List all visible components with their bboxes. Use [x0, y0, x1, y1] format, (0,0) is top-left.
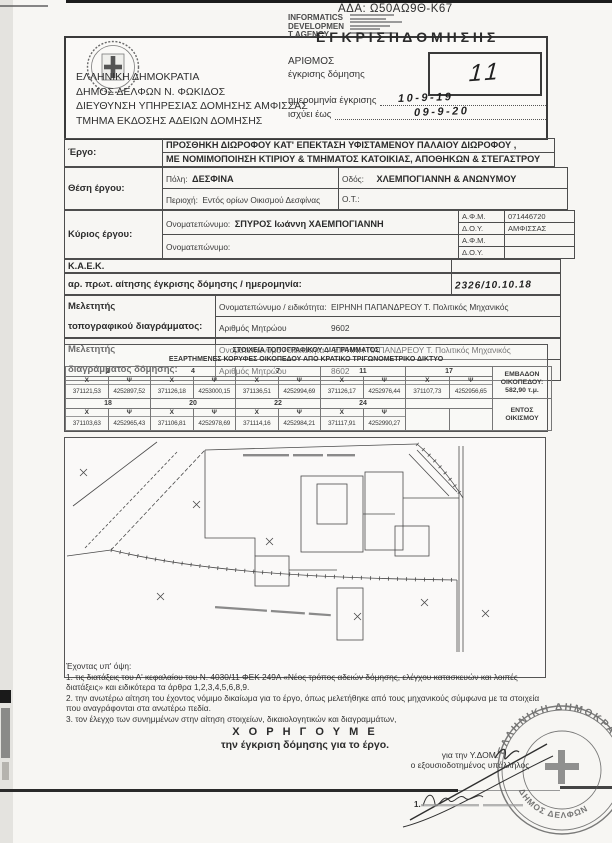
site-plan-box [64, 437, 546, 678]
street-value: ΧΛΕΜΠΟΓΙΑΝΝΗ & ΑΝΩΝΥΜΟΥ [376, 174, 516, 184]
surveyor1-reg-value: 9602 [331, 323, 349, 333]
kaek-label: Κ.Α.Ε.Κ. [65, 260, 452, 273]
scanned-building-permit-page: ΑΔΑ: Ω50ΑΩ9Θ-Κ67 ΕΛΛΗΝΙΚΗ ΔΗΜΟΚΡΑΤΙΑ ΔΗΜ… [0, 0, 612, 843]
coord-cell-empty [449, 409, 493, 431]
coord-cell: Ψ4252976,44 [363, 377, 406, 399]
coord-cell: X371136,51 [236, 377, 279, 399]
owner-name-value: ΣΠΥΡΟΣ Ιωάννη ΧΑΕΜΠΟΓΙΑΝΝΗ [235, 219, 384, 229]
coord-cell: X371114,16 [236, 409, 279, 431]
coord-cell: Ψ4252897,52 [108, 377, 151, 399]
surveyor1-name-value: ΕΙΡΗΝΗ ΠΑΠΑΝΔΡΕΟΥ Τ. Πολιτικός Μηχανικός [331, 302, 508, 312]
approval-date-value: 10-9-19 [398, 91, 454, 105]
kaek-value [452, 260, 561, 273]
coord-cell: Ψ4252965,43 [108, 409, 151, 431]
point-number-empty [406, 399, 493, 409]
signature-scrawl [395, 728, 565, 833]
point-number: 18 [66, 399, 151, 409]
point-number: 11 [321, 367, 406, 377]
city-cell: Πόλη: ΔΕΣΦΙΝΑ [163, 168, 339, 189]
valid-until-label: ισχύει έως [288, 109, 331, 120]
coord-cell: Ψ4252984,21 [278, 409, 321, 431]
doy-label: Δ.Ο.Υ. [459, 223, 505, 235]
table-row: Έργο: ΠΡΟΣΘΗΚΗ ΔΙΩΡΟΦΟΥ ΚΑΤ' ΕΠΕΚΤΑΣΗ ΥΦ… [65, 139, 555, 167]
protocol-value-cell: 2326/10.10.18 [452, 274, 561, 295]
coord-cell-empty [406, 409, 450, 431]
table-row: τοπογραφικού διαγράμματος: Αριθμός Μητρώ… [65, 317, 561, 338]
surveyor1-table: Μελετητής Ονοματεπώνυμο / ειδικότητα: ΕΙ… [64, 295, 561, 338]
scan-blob [0, 690, 11, 703]
approval-number-sublabel: έγκρισης δόμησης [288, 69, 365, 80]
coordinates-table: 1 4 7 11 17 ΕΜΒΑΔΟΝ ΟΙΚΟΠΕΔΟΥ: 582,90 τ.… [65, 366, 552, 431]
location-label: Θέση έργου: [65, 168, 163, 210]
doy2-label: Δ.Ο.Υ. [459, 247, 505, 259]
valid-until-value: 09-9-20 [414, 105, 470, 119]
coord-cell: X371107,73 [406, 377, 450, 399]
point-number: 17 [406, 367, 493, 377]
table-row: Μελετητής Ονοματεπώνυμο / ειδικότητα: ΕΙ… [65, 296, 561, 317]
owner-name-label: Ονοματεπώνυμο: [166, 219, 230, 229]
region-value: Εντός ορίων Οικισμού Δεσφίνας [202, 195, 320, 205]
project-line-2: ΜΕ ΝΟΜΙΜΟΠΟΙΗΣΗ ΚΤΙΡΙΟΥ & ΤΜΗΜΑΤΟΣ ΚΑΤΟΙ… [163, 153, 554, 166]
legal-item-1a: 1. τις διατάξεις του Α' κεφαλαίου του Ν.… [66, 672, 544, 683]
point-number: 1 [66, 367, 151, 377]
city-label: Πόλη: [166, 174, 188, 184]
approval-number-value: 11 [467, 53, 503, 94]
point-number: 22 [236, 399, 321, 409]
afm-label: Α.Φ.Μ. [459, 211, 505, 223]
street-label: Οδός: [342, 174, 364, 184]
ot-cell: Ο.Τ.: [339, 189, 568, 210]
owner-name-cell: Ονοματεπώνυμο: ΣΠΥΡΟΣ Ιωάννη ΧΑΕΜΠΟΓΙΑΝΝ… [163, 211, 459, 235]
point-number: 24 [321, 399, 406, 409]
afm-value: 071446720 [505, 211, 575, 223]
approval-date-label: ημερομηνία έγκρισης [288, 95, 376, 106]
legal-item-2a: 2. την ανωτέρω αίτηση του έχοντος νόμιμο… [66, 693, 544, 704]
table-row: Κύριος έργου: Ονοματεπώνυμο: ΣΠΥΡΟΣ Ιωάν… [65, 211, 575, 223]
coord-cell: Ψ4253000,15 [193, 377, 236, 399]
coords-title: ΣΤΟΙΧΕΙΑ ΤΟΠΟΓΡΑΦΙΚΟΥ ΔΙΑΓΡΑΜΜΑΤΟΣ [65, 345, 547, 356]
legal-item-2b: που αναγράφονται στα ανωτέρω πεδία. [66, 703, 544, 714]
doy2-value [505, 247, 575, 259]
table-row: Θέση έργου: Πόλη: ΔΕΣΦΙΝΑ Οδός: ΧΛΕΜΠΟΓΙ… [65, 168, 568, 189]
project-cell: ΠΡΟΣΘΗΚΗ ΔΙΩΡΟΦΟΥ ΚΑΤ' ΕΠΕΚΤΑΣΗ ΥΦΙΣΤΑΜΕ… [163, 139, 555, 167]
point-number: 20 [151, 399, 236, 409]
approval-number-label: ΑΡΙΘΜΟΣ [288, 56, 334, 67]
coord-cell: X371126,17 [321, 377, 364, 399]
project-line-1: ΠΡΟΣΘΗΚΗ ΔΙΩΡΟΦΟΥ ΚΑΤ' ΕΠΕΚΤΑΣΗ ΥΦΙΣΤΑΜΕ… [163, 139, 554, 153]
legal-basis-text: Έχοντας υπ' όψη: 1. τις διατάξεις του Α'… [66, 661, 544, 725]
area-cell: ΕΜΒΑΔΟΝ ΟΙΚΟΠΕΔΟΥ: 582,90 τ.μ. [493, 367, 552, 399]
protocol-label: αρ. πρωτ. αίτησης έγκρισης δόμησης / ημε… [65, 274, 452, 295]
owner-table: Κύριος έργου: Ονοματεπώνυμο: ΣΠΥΡΟΣ Ιωάν… [64, 210, 575, 259]
coord-cell: Ψ4252956,65 [449, 377, 493, 399]
table-row: X371121,53 Ψ4252897,52 X371126,18 Ψ42530… [66, 377, 552, 399]
protocol-table: αρ. πρωτ. αίτησης έγκρισης δόμησης / ημε… [64, 273, 561, 295]
surveyor1-name-cell: Ονοματεπώνυμο / ειδικότητα: ΕΙΡΗΝΗ ΠΑΠΑΝ… [216, 296, 561, 317]
scan-blob [2, 762, 9, 780]
project-label: Έργο: [65, 139, 163, 167]
region-label: Περιοχή: [166, 195, 198, 205]
table-row: αρ. πρωτ. αίτησης έγκρισης δόμησης / ημε… [65, 274, 561, 295]
issuing-authority: ΕΛΛΗΝΙΚΗ ΔΗΜΟΚΡΑΤΙΑ ΔΗΜΟΣ ΔΕΛΦΩΝ Ν. ΦΩΚΙ… [76, 70, 308, 128]
coord-cell: X371117,91 [321, 409, 364, 431]
illegible-annotation [215, 454, 355, 616]
scan-bottom-line [0, 789, 458, 792]
city-value: ΔΕΣΦΙΝΑ [192, 174, 234, 184]
document-title: Ε Γ Κ Ρ Ι Σ Η Δ Ο Μ Η Σ Η Σ [316, 29, 495, 45]
kaek-table: Κ.Α.Ε.Κ. [64, 259, 561, 273]
legal-item-1b: διατάξεις» και ειδικότερα τα άρθρα 1,2,3… [66, 682, 544, 693]
approval-number-box: 11 [428, 52, 542, 96]
zone-cell: ΕΝΤΟΣ ΟΙΚΙΣΜΟΥ [493, 399, 552, 431]
legal-item-3: 3. τον έλεγχο των συνημμένων στην αίτηση… [66, 714, 544, 725]
table-row: Κ.Α.Ε.Κ. [65, 260, 561, 273]
authority-line: ΤΜΗΜΑ ΕΚΔΟΣΗΣ ΑΔΕΙΩΝ ΔΟΜΗΣΗΣ [76, 114, 308, 129]
illegible-signature-line [421, 804, 523, 806]
coord-cell: Ψ4252978,69 [193, 409, 236, 431]
table-row: 1 4 7 11 17 ΕΜΒΑΔΟΝ ΟΙΚΟΠΕΔΟΥ: 582,90 τ.… [66, 367, 552, 377]
coords-subtitle: ΕΞΑΡΤΗΜΕΝΕΣ ΚΟΡΥΦΕΣ ΟΙΚΟΠΕΔΟΥ ΑΠΟ ΚΡΑΤΙΚ… [65, 356, 547, 365]
coord-cell: X371121,53 [66, 377, 109, 399]
region-cell: Περιοχή: Εντός ορίων Οικισμού Δεσφίνας [163, 189, 339, 210]
owner2-name-cell: Ονοματεπώνυμο: [163, 235, 459, 259]
coord-cell: Ψ4252994,69 [278, 377, 321, 399]
having-regard: Έχοντας υπ' όψη: [66, 661, 544, 672]
point-number: 4 [151, 367, 236, 377]
project-table: Έργο: ΠΡΟΣΘΗΚΗ ΔΙΩΡΟΦΟΥ ΚΑΤ' ΕΠΕΚΤΑΣΗ ΥΦ… [64, 138, 555, 167]
surveyor1-label-1: Μελετητής [65, 296, 216, 317]
coord-cell: X371126,18 [151, 377, 194, 399]
coordinates-section: ΣΤΟΙΧΕΙΑ ΤΟΠΟΓΡΑΦΙΚΟΥ ΔΙΑΓΡΑΜΜΑΤΟΣ ΕΞΑΡΤ… [64, 344, 548, 432]
owner-label: Κύριος έργου: [65, 211, 163, 259]
authority-line: ΕΛΛΗΝΙΚΗ ΔΗΜΟΚΡΑΤΙΑ [76, 70, 308, 85]
location-table: Θέση έργου: Πόλη: ΔΕΣΦΙΝΑ Οδός: ΧΛΕΜΠΟΓΙ… [64, 167, 568, 210]
site-plan-sketch [65, 438, 545, 677]
surveyor1-name-label: Ονοματεπώνυμο / ειδικότητα: [219, 302, 327, 312]
doy-value: ΑΜΦΙΣΣΑΣ [505, 223, 575, 235]
signature-list-prefix: 1. [414, 800, 421, 809]
table-row: X371103,63 Ψ4252965,43 X371106,81 Ψ42529… [66, 409, 552, 431]
scan-top-line-2 [0, 5, 48, 7]
afm2-value [505, 235, 575, 247]
street-cell: Οδός: ΧΛΕΜΠΟΓΙΑΝΝΗ & ΑΝΩΝΥΜΟΥ [339, 168, 568, 189]
afm2-label: Α.Φ.Μ. [459, 235, 505, 247]
area-value: 582,90 τ.μ. [493, 387, 551, 395]
point-number: 7 [236, 367, 321, 377]
surveyor1-label-2: τοπογραφικού διαγράμματος: [65, 317, 216, 338]
coord-cell: X371106,81 [151, 409, 194, 431]
coord-cell: X371103,63 [66, 409, 109, 431]
authority-line: ΔΗΜΟΣ ΔΕΛΦΩΝ Ν. ΦΩΚΙΔΟΣ [76, 85, 308, 100]
scan-blob [1, 708, 10, 758]
authority-line: ΔΙΕΥΘΥΝΣΗ ΥΠΗΡΕΣΙΑΣ ΔΟΜΗΣΗΣ ΑΜΦΙΣΣΑΣ [76, 99, 308, 114]
surveyor1-reg-cell: Αριθμός Μητρώου 9602 [216, 317, 561, 338]
coord-cell: Ψ4252990,27 [363, 409, 406, 431]
protocol-value: 2326/10.10.18 [455, 279, 532, 291]
table-row: 18 20 22 24 ΕΝΤΟΣ ΟΙΚΙΣΜΟΥ [66, 399, 552, 409]
surveyor1-reg-label: Αριθμός Μητρώου [219, 323, 287, 333]
